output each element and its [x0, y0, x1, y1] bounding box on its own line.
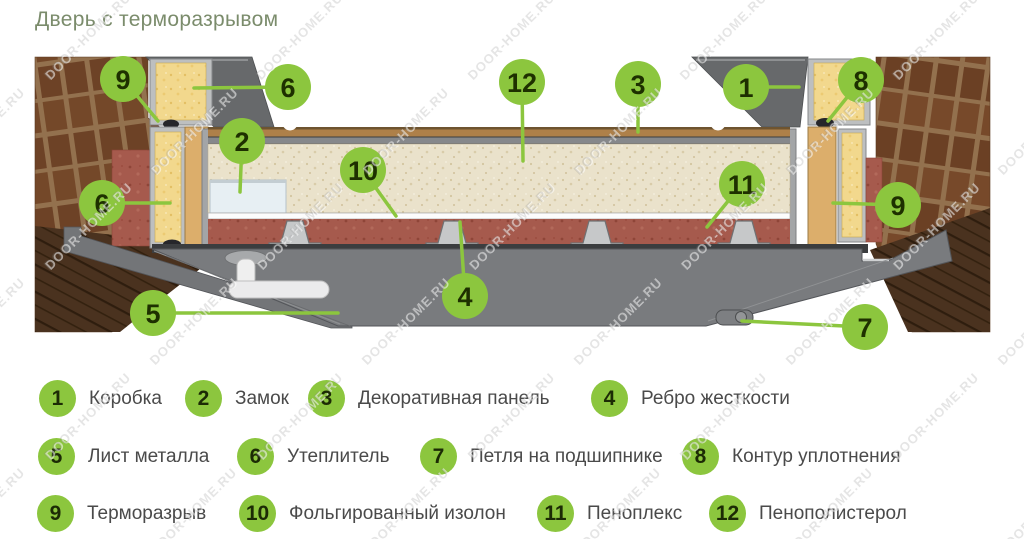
panel-notch [283, 116, 298, 131]
legend-label: Лист металла [88, 446, 209, 468]
legend-label: Коробка [89, 388, 162, 410]
polystyrene-layer [208, 144, 790, 213]
watermark-text: DOOR-HOME.RU [889, 370, 982, 463]
door-frame-right [808, 127, 882, 248]
callout-6-left: 6 [79, 180, 125, 226]
legend-label: Пенополистерол [759, 503, 907, 525]
callout-2: 2 [219, 118, 265, 164]
legend-item-8: 8Контур уплотнения [682, 438, 901, 475]
svg-text:7: 7 [857, 313, 872, 343]
svg-text:11: 11 [728, 170, 757, 200]
svg-text:3: 3 [630, 70, 645, 100]
legend-label: Петля на подшипнике [470, 446, 663, 468]
legend-number: 8 [682, 438, 719, 475]
legend-label: Замок [235, 388, 289, 410]
legend-label: Фольгированный изолон [289, 503, 506, 525]
legend-label: Декоративная панель [358, 388, 550, 410]
callout-6-top: 6 [265, 64, 311, 110]
legend-label: Утеплитель [287, 446, 390, 468]
legend-number: 12 [709, 495, 746, 532]
callout-11: 11 [719, 161, 765, 207]
lock-body [210, 180, 286, 213]
legend-number: 7 [420, 438, 457, 475]
legend-label: Контур уплотнения [732, 446, 901, 468]
legend-item-2: 2Замок [185, 380, 289, 417]
svg-text:9: 9 [115, 65, 130, 95]
legend-item-5: 5Лист металла [38, 438, 209, 475]
svg-text:6: 6 [280, 73, 295, 103]
inner-metal-liner [208, 137, 790, 144]
legend-number: 3 [308, 380, 345, 417]
legend-label: Пеноплекс [587, 503, 682, 525]
svg-text:2: 2 [234, 127, 249, 157]
callout-7: 7 [842, 304, 888, 350]
legend-number: 10 [239, 495, 276, 532]
door-section-illustration: 9 6 12 3 1 8 2 10 11 6 9 4 5 7 [0, 0, 1024, 365]
callout-4: 4 [442, 273, 488, 319]
legend-label: Ребро жесткости [641, 388, 790, 410]
svg-text:9: 9 [890, 191, 905, 221]
legend-number: 6 [237, 438, 274, 475]
legend-number: 1 [39, 380, 76, 417]
callout-1: 1 [723, 64, 769, 110]
legend-number: 9 [37, 495, 74, 532]
svg-text:6: 6 [94, 189, 109, 219]
legend-item-6: 6Утеплитель [237, 438, 390, 475]
legend-number: 5 [38, 438, 75, 475]
watermark-text: DOOR-HOME.RU [995, 465, 1024, 539]
legend-item-11: 11Пеноплекс [537, 495, 682, 532]
legend-number: 4 [591, 380, 628, 417]
svg-text:5: 5 [145, 299, 160, 329]
legend-label: Терморазрыв [87, 503, 206, 525]
callout-3: 3 [615, 61, 661, 107]
callout-10: 10 [340, 147, 386, 193]
callout-8: 8 [838, 57, 884, 103]
legend-number: 2 [185, 380, 222, 417]
svg-text:12: 12 [507, 68, 537, 98]
watermark-text: DOOR-HOME.RU [0, 465, 28, 539]
legend-item-3: 3Декоративная панель [308, 380, 550, 417]
svg-text:10: 10 [348, 156, 378, 186]
callout-12: 12 [499, 59, 545, 105]
callout-9-left: 9 [100, 56, 146, 102]
legend-item-7: 7Петля на подшипнике [420, 438, 663, 475]
callout-9-right: 9 [875, 182, 921, 228]
legend-item-12: 12Пенополистерол [709, 495, 907, 532]
insulation-block-top-left [150, 59, 212, 129]
svg-text:8: 8 [853, 66, 868, 96]
legend-number: 11 [537, 495, 574, 532]
izolon-layer [208, 213, 790, 219]
legend-item-9: 9Терморазрыв [37, 495, 206, 532]
svg-text:1: 1 [738, 73, 753, 103]
legend-item-10: 10Фольгированный изолон [239, 495, 506, 532]
panel-notch [711, 116, 726, 131]
screenshot-root: Дверь с терморазрывом [0, 0, 1024, 539]
callout-5: 5 [130, 290, 176, 336]
legend-item-4: 4Ребро жесткости [591, 380, 790, 417]
legend-item-1: 1Коробка [39, 380, 162, 417]
svg-text:4: 4 [457, 282, 472, 312]
